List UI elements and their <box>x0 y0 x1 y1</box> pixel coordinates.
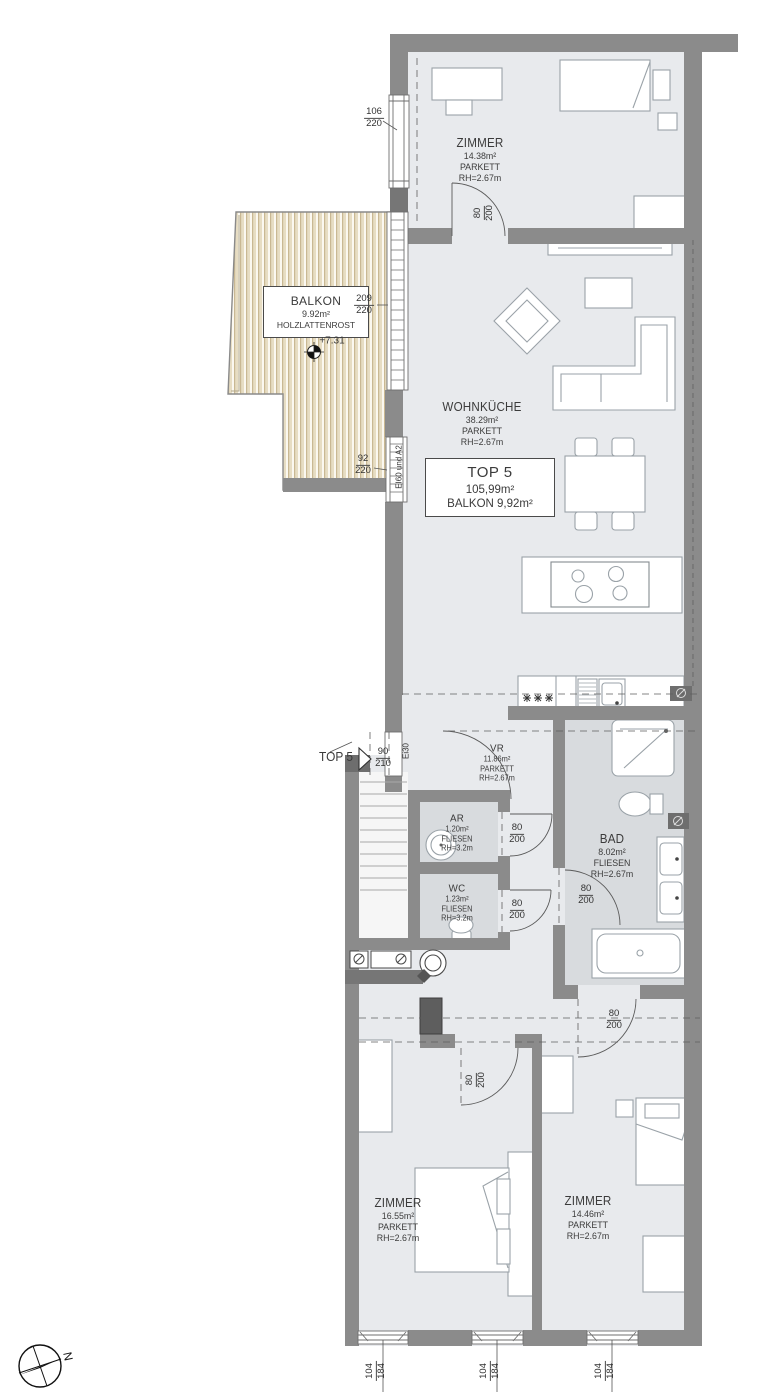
room-label-zimmer-bl: ZIMMER 16.55m² PARKETT RH=2.67m <box>375 1196 422 1244</box>
room-label-vr: VR 11.86m² PARKETT RH=2.67m <box>479 743 515 784</box>
kitchen-island-icon <box>522 557 682 613</box>
room-label-bad: BAD 8.02m² FLIESEN RH=2.67m <box>591 832 633 880</box>
dim-window-b1: 104184 <box>365 1361 387 1381</box>
dim-door-ar: 80200 <box>509 823 525 845</box>
dim-balcony-door: 209220 <box>354 294 374 316</box>
shower-icon <box>612 720 674 776</box>
window-top-left <box>389 95 409 188</box>
compass-north-label: N <box>60 1351 75 1362</box>
entrance-fire-rating: Ei30 <box>402 743 411 759</box>
dim-door-zimmer-top: 80200 <box>473 205 495 221</box>
nightstand-icon <box>658 113 677 130</box>
dim-window-b3: 104184 <box>594 1361 616 1381</box>
compass: N <box>19 1345 76 1387</box>
stove-icon <box>551 562 649 607</box>
dim-door-zimmer-bl: 80200 <box>465 1072 487 1088</box>
room-label-zimmer-top: ZIMMER 14.38m² PARKETT RH=2.67m <box>457 136 504 184</box>
unit-title: TOP 5 <box>426 464 554 483</box>
dim-door-bad: 80200 <box>578 884 594 906</box>
dim-window-b2: 104184 <box>479 1361 501 1381</box>
chimney <box>420 998 442 1034</box>
balcony-name: BALKON <box>264 294 368 309</box>
windows-bottom <box>358 1331 638 1344</box>
dim-entrance-door: 90210 <box>375 747 391 769</box>
room-label-ar: AR 1.20m² FLIESEN RH=3.2m <box>441 813 473 854</box>
balcony-area: 9.92m² <box>264 309 368 320</box>
bed-icon-br <box>636 1098 689 1185</box>
dishwasher-icon <box>578 679 597 708</box>
dim-door-zimmer-br: 80200 <box>606 1009 622 1031</box>
floorplan-svg: N <box>0 0 768 1396</box>
room-label-zimmer-br: ZIMMER 14.46m² PARKETT RH=2.67m <box>565 1194 612 1242</box>
wardrobe-icon-br <box>540 1056 573 1113</box>
washbasin-icon <box>657 837 684 922</box>
sink-icon <box>599 679 625 708</box>
compass-needle-icon <box>19 1358 62 1375</box>
unit-balcony-area: BALKON 9,92m² <box>426 497 554 511</box>
wall-fire-rating: EI60 und A2 <box>395 445 404 489</box>
wardrobe-icon-bl <box>358 1040 392 1132</box>
kitchen-counter-icon <box>518 676 684 709</box>
dim-window-mid: 92220 <box>355 454 371 476</box>
dim-window-top: 106220 <box>364 107 384 129</box>
bathtub-icon <box>592 929 685 978</box>
balcony-surface: HOLZLATTENROST <box>264 320 368 331</box>
desk-icon-br <box>643 1236 689 1292</box>
coffee-table-icon <box>585 278 632 308</box>
dim-door-wc: 80200 <box>509 899 525 921</box>
nightstand-icon-br <box>616 1100 633 1117</box>
toilet-icon-bad <box>619 792 663 816</box>
floorplan-page: N BALKON 9.92m² HOLZLATTENROST +7.31 TOP… <box>0 0 768 1396</box>
balcony-glass-wall <box>387 212 408 390</box>
unit-area: 105,99m² <box>426 483 554 497</box>
entrance-unit-label: TOP 5 <box>319 750 353 764</box>
room-label-wohnkueche: WOHNKÜCHE 38.29m² PARKETT RH=2.67m <box>442 400 521 448</box>
balcony-level: +7.31 <box>319 336 344 347</box>
wardrobe-icon-top <box>634 196 690 230</box>
unit-info-box: TOP 5 105,99m² BALKON 9,92m² <box>425 458 555 517</box>
room-label-wc: WC 1.23m² FLIESEN RH=3.2m <box>441 883 473 924</box>
